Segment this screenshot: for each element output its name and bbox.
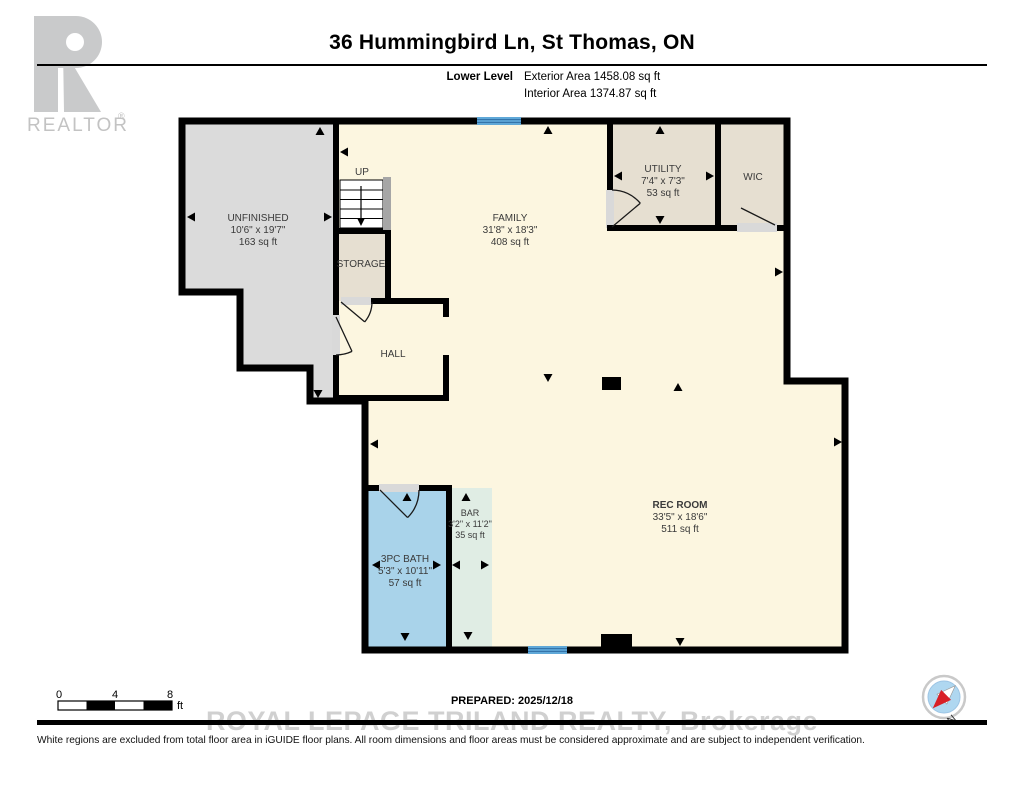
bar-dims: 3'2" x 11'2" <box>448 519 492 529</box>
interior-area-value: Interior Area 1374.87 sq ft <box>524 88 656 100</box>
family-area-label: 408 sq ft <box>491 237 530 248</box>
floorplan-graphic: REALTOR ® <box>0 0 1024 791</box>
bar-label: BAR <box>461 508 480 518</box>
support-column <box>602 377 621 390</box>
storage-label: STORAGE <box>337 259 386 270</box>
bath-dims: 5'3" x 10'11" <box>378 566 433 577</box>
utility-area-label: 53 sq ft <box>647 188 680 199</box>
room-fills <box>182 121 845 650</box>
utility-dims: 7'4" x 7'3" <box>641 176 685 187</box>
rec-room-area-label: 511 sq ft <box>661 524 699 535</box>
disclaimer-text: White regions are excluded from total fl… <box>37 735 987 746</box>
family-label: FAMILY <box>493 213 528 224</box>
hall-label: HALL <box>380 349 405 360</box>
wic-label: WIC <box>743 172 762 183</box>
utility-label: UTILITY <box>644 164 682 175</box>
exterior-area-value: Exterior Area 1458.08 sq ft <box>524 71 660 83</box>
unfinished-area-label: 163 sq ft <box>239 237 278 248</box>
stairs-icon <box>340 177 391 230</box>
unfinished-dims: 10'6" x 19'7" <box>231 225 286 236</box>
rec-room-dims: 33'5" x 18'6" <box>653 512 708 523</box>
level-label: Lower Level <box>447 71 513 83</box>
page-title: 36 Hummingbird Ln, St Thomas, ON <box>0 31 1024 55</box>
family-dims: 31'8" x 18'3" <box>483 225 538 236</box>
unfinished-area <box>182 121 336 401</box>
header-divider <box>37 64 987 66</box>
unfinished-label: UNFINISHED <box>227 213 288 224</box>
bar-area-label: 35 sq ft <box>455 530 485 540</box>
rec-room-label: REC ROOM <box>653 500 708 511</box>
footer-divider <box>37 720 987 725</box>
registered-mark: ® <box>118 111 125 121</box>
realtor-logo-text: REALTOR <box>27 115 129 136</box>
bath-area-label: 57 sq ft <box>389 578 422 589</box>
chimney-bump <box>601 634 632 649</box>
floorplan-page: REALTOR ® <box>0 0 1024 791</box>
bath-label: 3PC BATH <box>381 554 429 565</box>
stairs-up-label: UP <box>355 167 369 178</box>
